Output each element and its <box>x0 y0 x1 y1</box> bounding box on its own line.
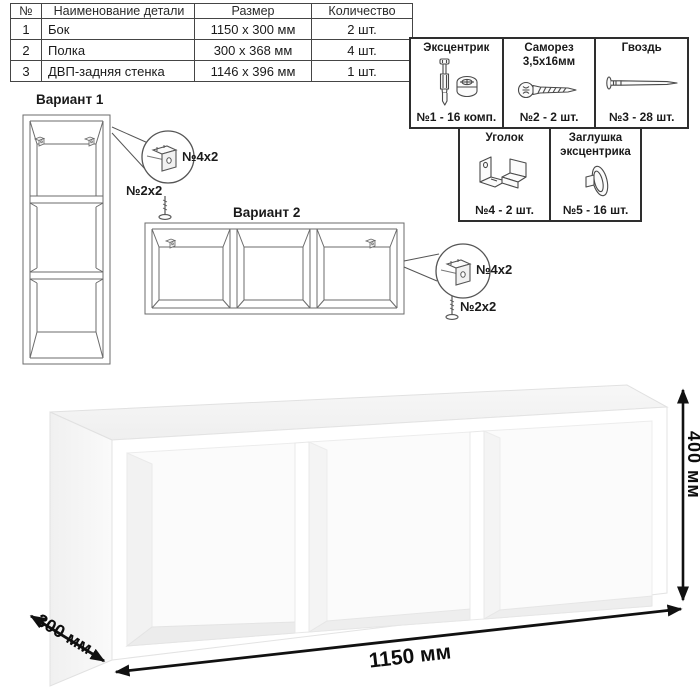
part-num: 3 <box>11 61 42 82</box>
variant2-screw-label: №2х2 <box>460 299 496 314</box>
shelf-3d-render <box>0 375 700 690</box>
hardware-count: №3 - 28 шт. <box>609 110 675 124</box>
hardware-cell-nail: Гвоздь №3 - 28 шт. <box>594 39 687 127</box>
part-size: 1150 x 300 мм <box>195 19 312 40</box>
part-qty: 2 шт. <box>312 19 413 40</box>
height-dimension-label: 400 мм <box>683 431 700 499</box>
hardware-count: №1 - 16 комп. <box>416 110 496 124</box>
hardware-title: Уголок <box>485 132 523 144</box>
parts-table-header-row: № Наименование детали Размер Количество <box>11 4 413 19</box>
hardware-title: Эксцентрик <box>423 42 489 54</box>
compartment-3 <box>484 421 652 619</box>
part-size: 300 x 368 мм <box>195 40 312 61</box>
nail-icon <box>604 73 680 93</box>
hardware-count: №5 - 16 шт. <box>563 203 629 217</box>
hardware-cell-screw: Саморез3,5х16мм №2 - 2 шт. <box>502 39 595 127</box>
part-name: Полка <box>42 40 195 61</box>
screw-icon <box>516 75 582 105</box>
parts-table: № Наименование детали Размер Количество … <box>10 3 413 82</box>
variant2-bracket-label: №4х2 <box>476 262 512 277</box>
part-name: ДВП-задняя стенка <box>42 61 195 82</box>
divider-1 <box>295 442 309 633</box>
variant1-title: Вариант 1 <box>36 92 103 107</box>
table-row: 1 Бок 1150 x 300 мм 2 шт. <box>11 19 413 40</box>
part-num: 1 <box>11 19 42 40</box>
part-num: 2 <box>11 40 42 61</box>
part-qty: 4 шт. <box>312 40 413 61</box>
hardware-count: №2 - 2 шт. <box>520 110 579 124</box>
col-header-size: Размер <box>195 4 312 19</box>
compartment-2 <box>309 432 470 632</box>
table-row: 2 Полка 300 x 368 мм 4 шт. <box>11 40 413 61</box>
assembly-instruction-sheet: № Наименование детали Размер Количество … <box>0 0 700 690</box>
hardware-title-line2: 3,5х16мм <box>523 56 575 68</box>
screw-callout-icon <box>446 296 458 319</box>
part-name: Бок <box>42 19 195 40</box>
hardware-box-top-row: Эксцентрик <box>409 37 689 129</box>
divider-2 <box>470 431 484 620</box>
hardware-title: Саморез <box>524 42 573 54</box>
col-header-qty: Количество <box>312 4 413 19</box>
variant1-screw-label: №2х2 <box>126 183 162 198</box>
variant1-bracket-label: №4х2 <box>182 149 218 164</box>
part-qty: 1 шт. <box>312 61 413 82</box>
table-row: 3 ДВП-задняя стенка 1146 x 396 мм 1 шт. <box>11 61 413 82</box>
hardware-title-line2: эксцентрика <box>560 146 631 158</box>
cam-cap-icon <box>574 160 618 202</box>
hardware-cell-cap: Заглушкаэксцентрика №5 - 16 шт. <box>549 129 640 220</box>
col-header-num: № <box>11 4 42 19</box>
hardware-cell-cam: Эксцентрик <box>411 39 502 127</box>
corner-bracket-icon <box>476 152 534 196</box>
hardware-title: Заглушка <box>569 132 622 144</box>
hardware-title: Гвоздь <box>622 42 662 54</box>
cam-bolt-icon <box>429 58 483 108</box>
part-size: 1146 x 396 мм <box>195 61 312 82</box>
col-header-name: Наименование детали <box>42 4 195 19</box>
